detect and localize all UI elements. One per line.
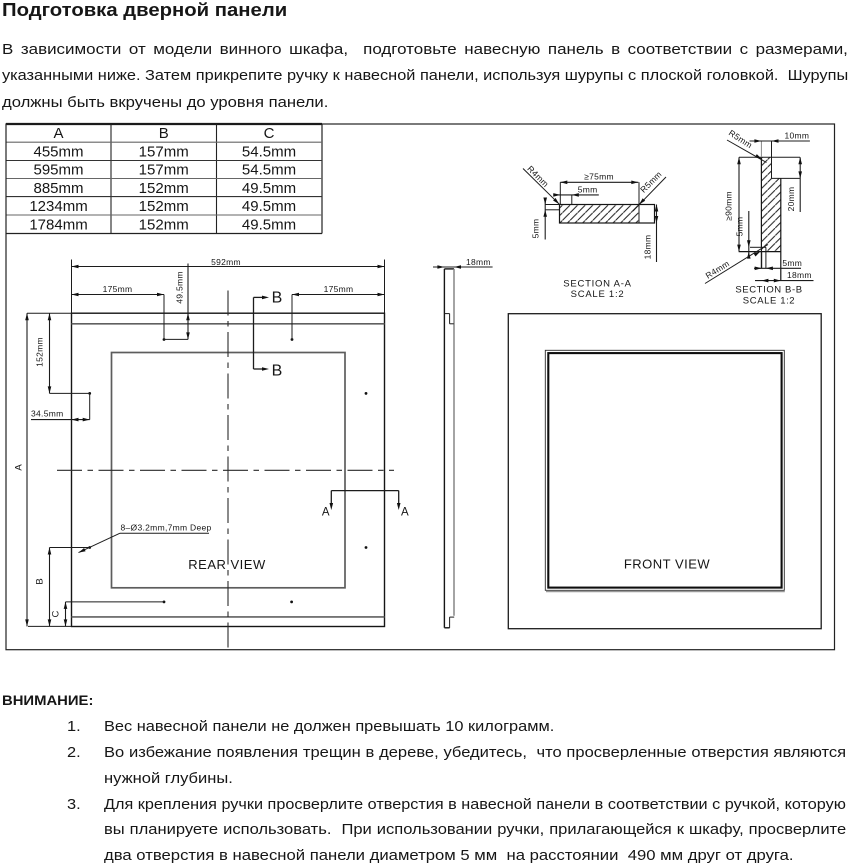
svg-text:49.5mm: 49.5mm [242, 180, 296, 197]
svg-text:SECTION B-B: SECTION B-B [735, 284, 802, 295]
svg-text:FRONT VIEW: FRONT VIEW [624, 557, 711, 572]
svg-text:B: B [35, 578, 46, 584]
svg-text:49.5mm: 49.5mm [242, 198, 296, 215]
svg-text:152mm: 152mm [139, 216, 189, 233]
svg-text:152mm: 152mm [35, 337, 45, 367]
svg-text:152mm: 152mm [139, 198, 189, 215]
svg-text:A: A [401, 507, 409, 519]
svg-text:595mm: 595mm [33, 162, 83, 179]
svg-text:54.5mm: 54.5mm [242, 162, 296, 179]
svg-text:5mm: 5mm [531, 219, 541, 239]
svg-text:157mm: 157mm [139, 144, 189, 161]
svg-text:49.5mm: 49.5mm [242, 216, 296, 233]
svg-text:20mm: 20mm [786, 187, 796, 212]
svg-text:34.5mm: 34.5mm [31, 409, 64, 419]
svg-text:C: C [264, 125, 275, 142]
svg-text:R5mm: R5mm [727, 128, 754, 151]
svg-text:B: B [159, 125, 169, 142]
svg-text:5mm: 5mm [578, 184, 598, 194]
svg-text:5mm: 5mm [782, 258, 802, 268]
svg-text:8–Ø3.2mm,7mm Deep: 8–Ø3.2mm,7mm Deep [121, 523, 212, 533]
svg-text:18mm: 18mm [787, 270, 812, 280]
svg-text:SCALE 1:2: SCALE 1:2 [743, 295, 795, 306]
svg-text:B: B [272, 362, 283, 379]
svg-text:885mm: 885mm [33, 180, 83, 197]
svg-text:18mm: 18mm [466, 257, 491, 267]
svg-text:R5mm: R5mm [638, 169, 664, 195]
svg-text:10mm: 10mm [785, 131, 810, 141]
svg-text:54.5mm: 54.5mm [242, 144, 296, 161]
svg-text:SCALE 1:2: SCALE 1:2 [571, 289, 625, 300]
svg-text:18mm: 18mm [643, 235, 653, 260]
svg-text:152mm: 152mm [139, 180, 189, 197]
svg-text:455mm: 455mm [33, 144, 83, 161]
svg-text:1234mm: 1234mm [29, 198, 87, 215]
svg-text:SECTION A-A: SECTION A-A [563, 278, 631, 289]
svg-text:≥90mm: ≥90mm [724, 191, 734, 221]
svg-text:B: B [272, 289, 283, 306]
svg-text:5mm: 5mm [735, 217, 745, 237]
svg-text:≥75mm: ≥75mm [584, 172, 614, 182]
svg-text:A: A [14, 464, 25, 471]
svg-text:175mm: 175mm [103, 284, 133, 294]
svg-text:1784mm: 1784mm [29, 216, 87, 233]
svg-text:157mm: 157mm [139, 162, 189, 179]
svg-text:175mm: 175mm [324, 284, 354, 294]
svg-text:A: A [322, 507, 330, 519]
svg-text:A: A [53, 125, 63, 142]
svg-text:C: C [51, 610, 62, 617]
svg-text:49.5mm: 49.5mm [175, 271, 185, 304]
svg-text:R4mm: R4mm [525, 164, 551, 190]
svg-text:592mm: 592mm [211, 257, 241, 267]
svg-text:REAR VIEW: REAR VIEW [188, 557, 266, 572]
